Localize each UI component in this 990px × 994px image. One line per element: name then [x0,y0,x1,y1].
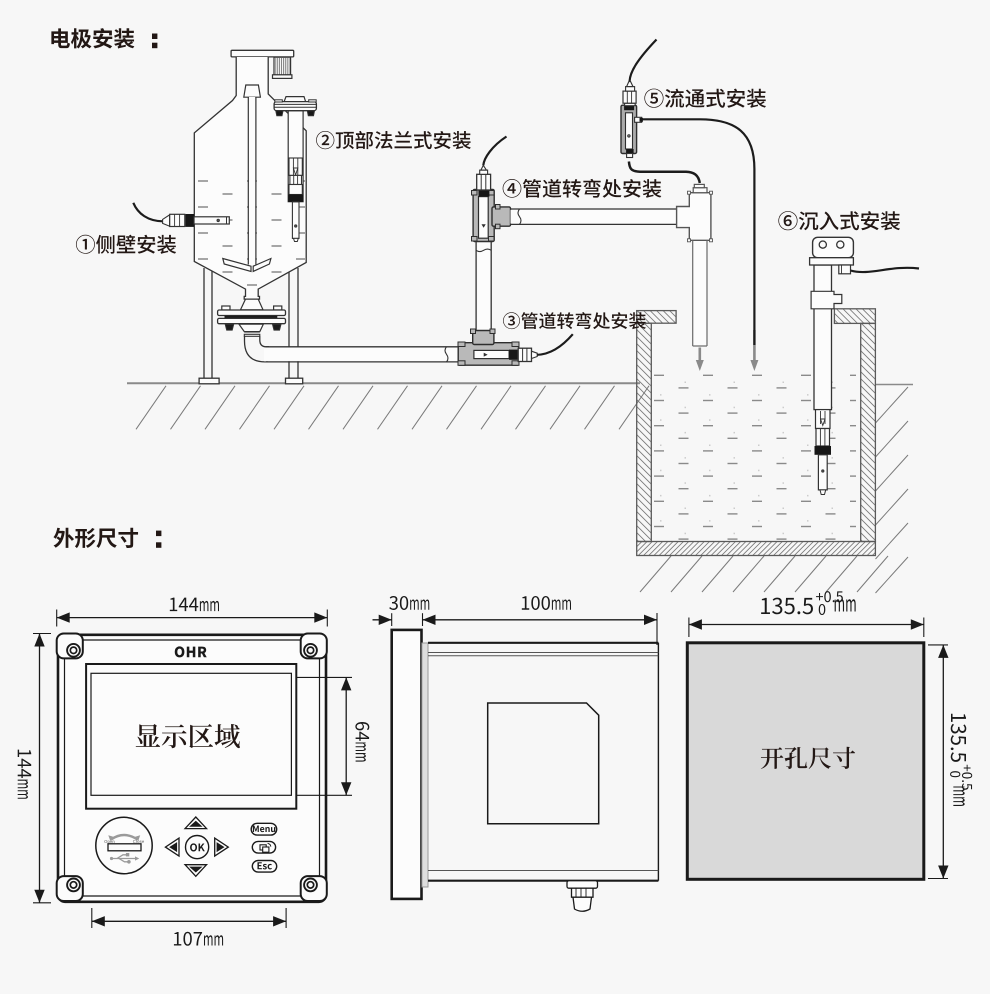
svg-text:Open: Open [104,839,115,844]
svg-text:Close: Close [133,839,145,844]
